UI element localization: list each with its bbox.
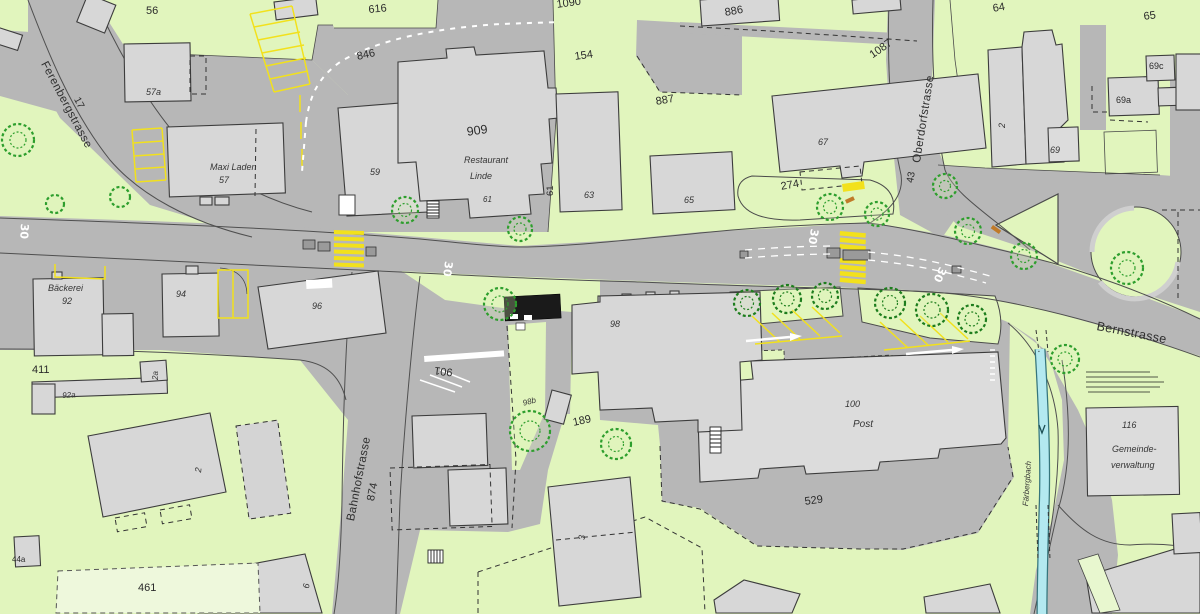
label-post: Post bbox=[853, 420, 873, 430]
porch-2 bbox=[160, 505, 192, 524]
maxi-entrance-1 bbox=[200, 197, 212, 205]
buildings bbox=[0, 0, 1200, 613]
label-building-98: 98 bbox=[610, 320, 620, 329]
building-right-edge bbox=[1176, 54, 1200, 110]
label-maxi-laden: Maxi Laden bbox=[210, 163, 257, 172]
label-building-65: 65 bbox=[684, 196, 694, 205]
tree bbox=[734, 290, 760, 316]
tree bbox=[812, 283, 838, 309]
building-baeckerei-annex bbox=[102, 313, 134, 356]
building-94 bbox=[162, 273, 219, 337]
green-patch-tr bbox=[1104, 130, 1157, 174]
tree bbox=[484, 288, 516, 320]
porch-1 bbox=[115, 513, 147, 532]
label-building-92a: 92a bbox=[62, 391, 76, 400]
label-parcel-616: 616 bbox=[368, 3, 387, 16]
label-building-69a: 69a bbox=[1116, 96, 1131, 105]
label-linde: Linde bbox=[470, 172, 492, 181]
building-maxi-laden-57 bbox=[167, 123, 285, 197]
tree bbox=[1051, 345, 1079, 373]
stairs-station bbox=[428, 550, 443, 563]
map-canvas bbox=[0, 0, 1200, 614]
tree bbox=[958, 305, 986, 333]
tree bbox=[2, 124, 34, 156]
label-parcel-411: 411 bbox=[32, 365, 50, 376]
shelter-box bbox=[516, 323, 525, 330]
building-station-874-b bbox=[448, 468, 508, 526]
building-94-entrance bbox=[186, 266, 198, 274]
label-building-2a: 2a bbox=[152, 371, 160, 380]
tree bbox=[773, 285, 801, 313]
tree bbox=[1011, 243, 1037, 269]
building-sq-right bbox=[1158, 87, 1177, 106]
label-parcel-65-tr: 65 bbox=[1143, 10, 1157, 23]
building-bottom-mid-1 bbox=[714, 580, 800, 613]
building-br-small bbox=[1172, 513, 1200, 554]
building-59-notch bbox=[339, 195, 355, 215]
tree bbox=[392, 197, 418, 223]
label-baeckerei: Bäckerei bbox=[48, 284, 83, 293]
label-building-116: 116 bbox=[1122, 421, 1136, 430]
tree bbox=[1111, 252, 1143, 284]
building-3 bbox=[548, 477, 641, 606]
road-marking-30-a: 30 bbox=[18, 223, 30, 239]
tree-roundabout bbox=[933, 174, 957, 198]
label-61-vertical: 61 bbox=[546, 185, 556, 196]
tree bbox=[110, 187, 130, 207]
road-marking-30-b: 30 bbox=[441, 261, 454, 278]
tree bbox=[865, 202, 889, 226]
building-92a-wing bbox=[32, 384, 55, 414]
label-building-69c: 69c bbox=[1149, 62, 1164, 71]
label-building-2-bl: 2 bbox=[194, 467, 203, 473]
label-building-3: 3 bbox=[578, 535, 587, 540]
building-top-left-2 bbox=[274, 0, 318, 20]
label-building-69: 69 bbox=[1050, 146, 1060, 155]
label-building-61: 61 bbox=[483, 196, 492, 204]
tree bbox=[955, 218, 981, 244]
label-building-100: 100 bbox=[845, 400, 860, 409]
label-parcel-461: 461 bbox=[138, 583, 156, 594]
label-building-2-tr: 2 bbox=[998, 123, 1007, 128]
label-restaurant: Restaurant bbox=[464, 156, 508, 165]
label-building-44a: 44a bbox=[12, 556, 25, 564]
stream-faerbergbach bbox=[1036, 330, 1050, 614]
building-67 bbox=[772, 74, 986, 178]
tree bbox=[508, 217, 532, 241]
label-parcel-56: 56 bbox=[146, 6, 158, 17]
strip-69 bbox=[1080, 25, 1106, 130]
building-2-bottomleft bbox=[88, 413, 226, 517]
road-mark-96 bbox=[306, 279, 332, 289]
maxi-entrance-2 bbox=[215, 197, 229, 205]
label-building-57: 57 bbox=[219, 176, 229, 185]
label-building-6: 6 bbox=[302, 583, 311, 589]
label-parcel-64: 64 bbox=[992, 2, 1006, 15]
building-roof-projection bbox=[236, 420, 291, 519]
tree bbox=[875, 288, 905, 318]
building-planned bbox=[56, 563, 260, 613]
label-building-67: 67 bbox=[818, 138, 828, 147]
label-building-63: 63 bbox=[584, 191, 594, 200]
tree bbox=[916, 294, 948, 326]
label-building-92: 92 bbox=[62, 297, 72, 306]
tree bbox=[46, 195, 64, 213]
label-gemeinde: Gemeinde- bbox=[1112, 445, 1157, 454]
embankment-hatch bbox=[1086, 372, 1164, 392]
label-901: 901 bbox=[434, 364, 454, 377]
tree bbox=[817, 194, 843, 220]
shelter-door-2 bbox=[524, 315, 532, 320]
label-building-59: 59 bbox=[370, 168, 380, 177]
label-43: 43 bbox=[906, 171, 918, 184]
label-building-57a: 57a bbox=[146, 88, 161, 97]
label-verwaltung: verwaltung bbox=[1111, 461, 1155, 470]
building-2-topright bbox=[988, 47, 1026, 167]
label-building-96: 96 bbox=[312, 302, 322, 311]
building-station-874-a bbox=[412, 413, 488, 468]
building-bottom-mid-2 bbox=[924, 584, 1000, 613]
label-building-94: 94 bbox=[176, 290, 186, 299]
tree bbox=[510, 411, 550, 451]
road-marking-30-c: 30 bbox=[807, 228, 820, 245]
label-parcel-909: 909 bbox=[466, 123, 488, 138]
town-plan-map: 56 616 1090 154 886 887 1087 64 65 Feren… bbox=[0, 0, 1200, 614]
tree bbox=[601, 429, 631, 459]
